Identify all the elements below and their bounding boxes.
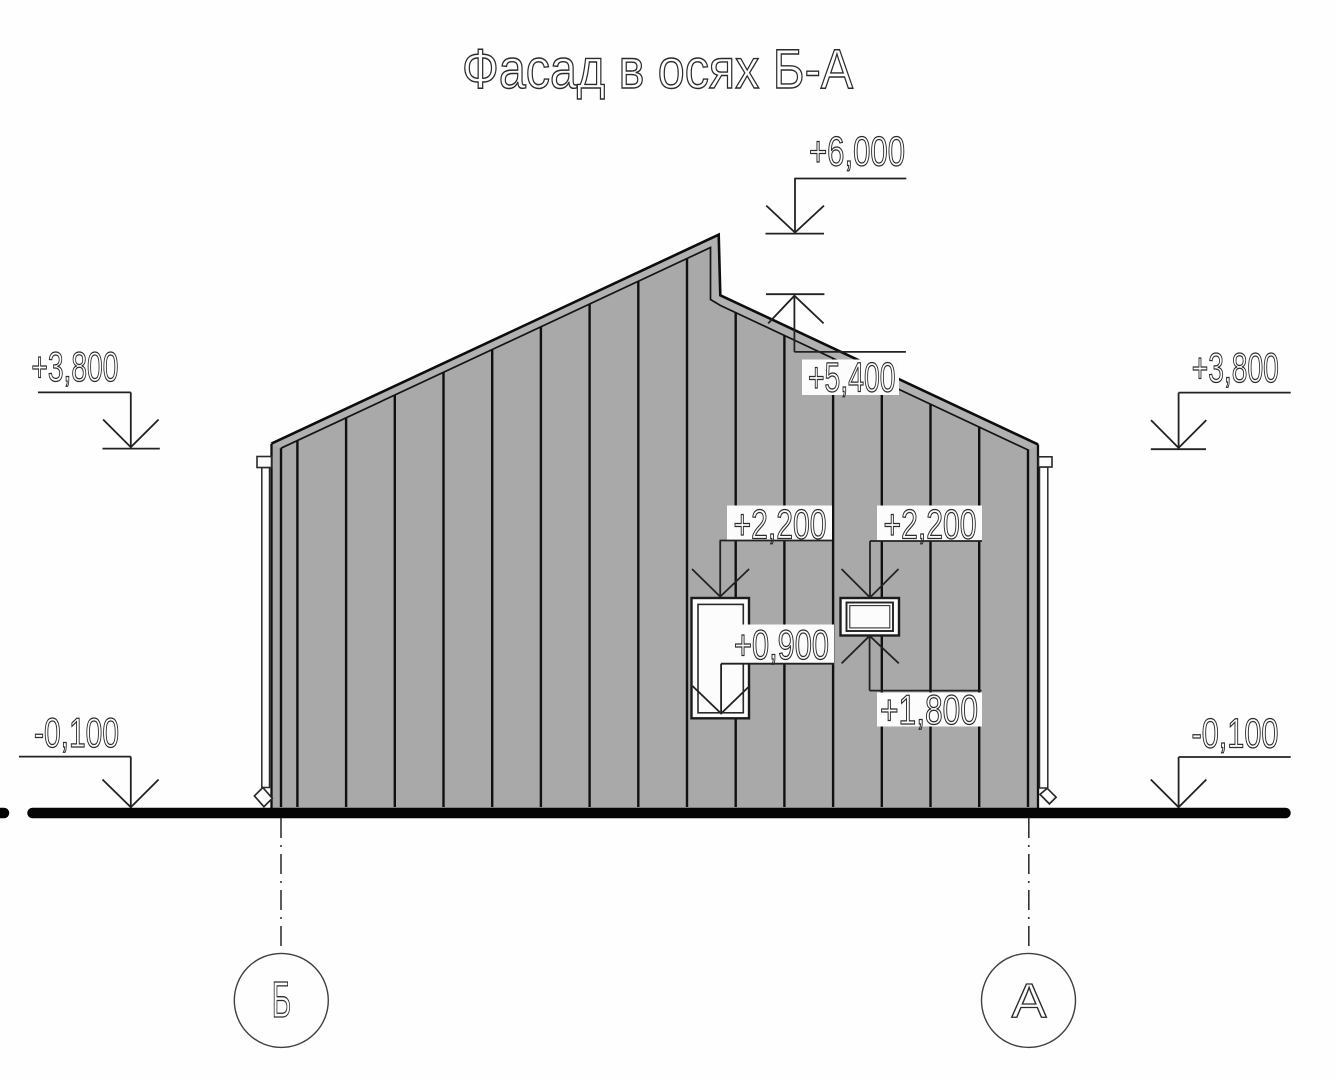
svg-text:-0,100: -0,100 <box>34 709 119 756</box>
svg-text:+3,800: +3,800 <box>31 343 118 390</box>
svg-text:+0,900: +0,900 <box>734 621 829 668</box>
svg-text:+3,800: +3,800 <box>1192 344 1279 391</box>
svg-text:+2,200: +2,200 <box>884 501 977 548</box>
svg-text:Б: Б <box>272 971 292 1028</box>
svg-text:+1,800: +1,800 <box>880 686 978 733</box>
svg-text:А: А <box>1012 974 1048 1028</box>
svg-text:+2,200: +2,200 <box>734 501 827 548</box>
svg-text:+5,400: +5,400 <box>808 354 896 401</box>
svg-text:Фасад в осях Б-А: Фасад в осях Б-А <box>462 37 854 100</box>
svg-text:-0,100: -0,100 <box>1192 710 1279 757</box>
svg-text:+6,000: +6,000 <box>809 128 905 175</box>
